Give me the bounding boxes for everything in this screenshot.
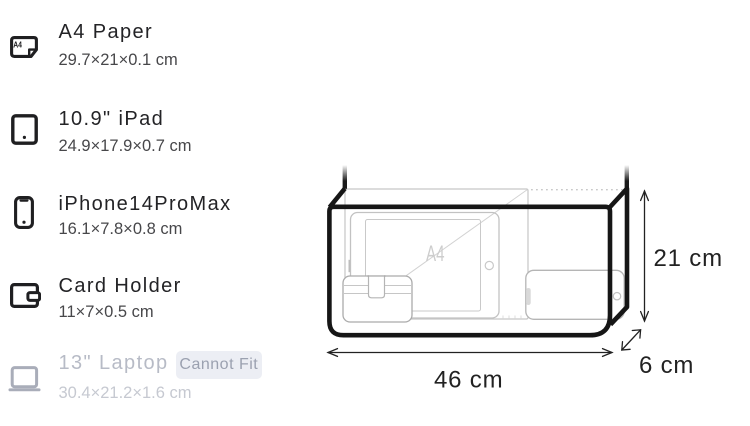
svg-text:6 cm: 6 cm xyxy=(639,352,694,379)
svg-text:46 cm: 46 cm xyxy=(434,367,503,394)
svg-text:A4: A4 xyxy=(426,241,445,266)
svg-text:21 cm: 21 cm xyxy=(654,245,723,272)
